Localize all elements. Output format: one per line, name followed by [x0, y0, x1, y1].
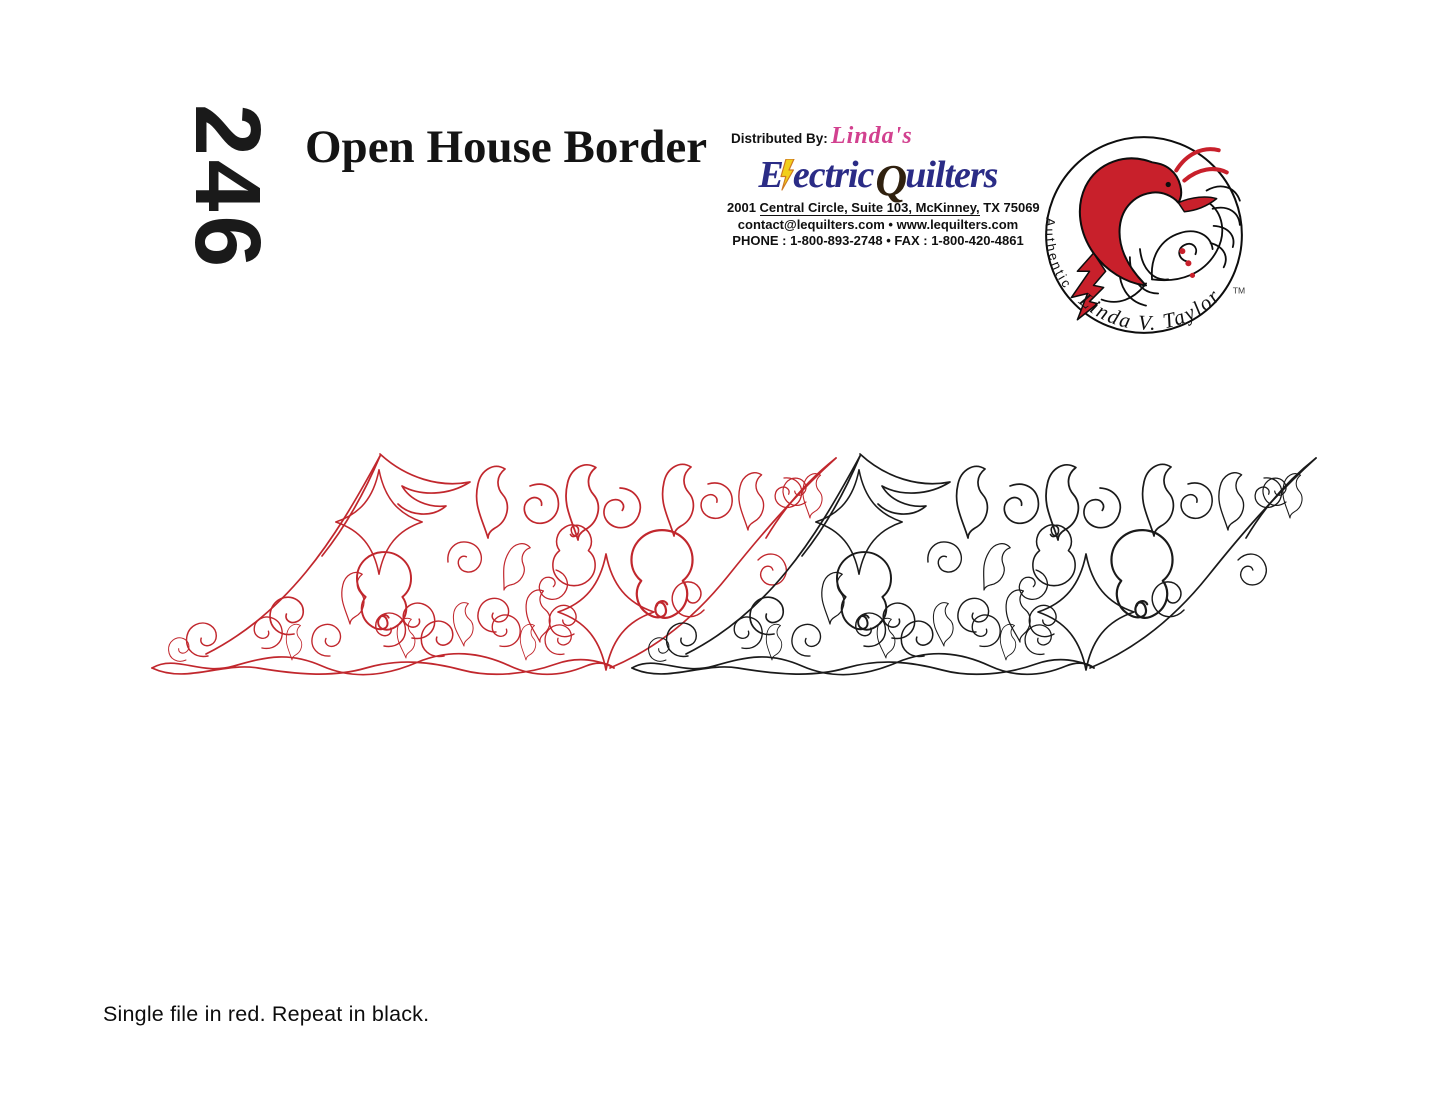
brand-electric-quilters: EectricQuilters	[727, 153, 1029, 197]
address-pre: 2001	[727, 200, 760, 215]
pattern-number: 246	[181, 104, 274, 271]
pattern-single-red	[152, 454, 836, 675]
phoenix-logo: Authentic Linda V. Taylor TM	[1033, 128, 1255, 350]
pattern-repeat-black	[632, 454, 1316, 675]
quilting-pattern	[140, 436, 1360, 688]
phone-line: PHONE : 1-800-893-2748 • FAX : 1-800-420…	[727, 233, 1029, 250]
logo-trademark: TM	[1233, 285, 1245, 295]
page-title: Open House Border	[305, 120, 715, 174]
brand-quilters-q: Q	[875, 166, 906, 196]
contact-line: contact@lequilters.com • www.lequilters.…	[727, 217, 1029, 234]
address-line: 2001 Central Circle, Suite 103, McKinney…	[727, 200, 1029, 217]
distributed-by-label: Distributed By:	[731, 131, 828, 146]
address-underlined: Central Circle, Suite 103, McKinney,	[760, 200, 980, 216]
address-post: TX 75069	[980, 200, 1040, 215]
distributor-block: Distributed By: Linda's EectricQuilters …	[727, 127, 1029, 250]
brand-electric-rest: ectric	[793, 154, 874, 196]
brand-script-lindas: Linda's	[831, 123, 913, 150]
brand-quilters-rest: uilters	[905, 154, 997, 196]
caption: Single file in red. Repeat in black.	[103, 1002, 429, 1027]
